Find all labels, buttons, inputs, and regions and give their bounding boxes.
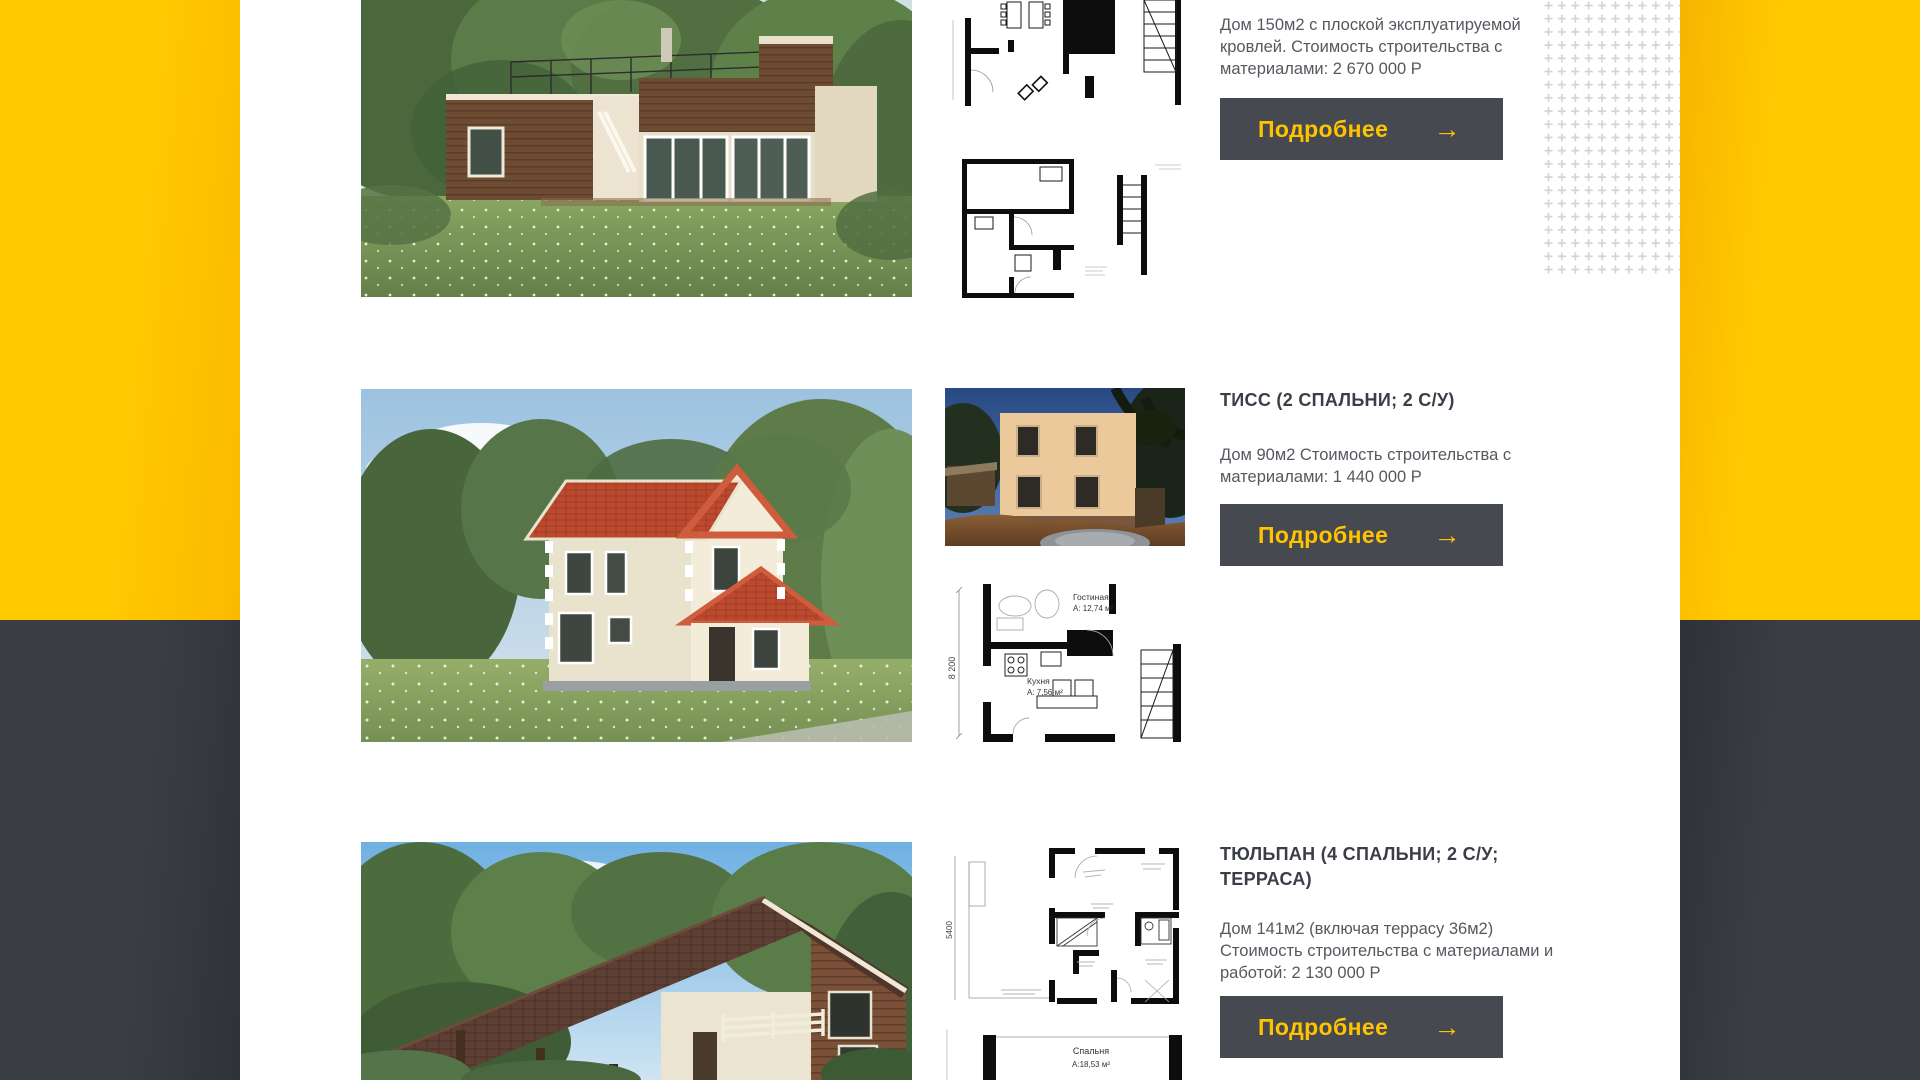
plan-room-label: Гостиная xyxy=(1073,592,1109,602)
plan-room-label: Кухня xyxy=(1027,676,1050,686)
plus-pattern-decoration xyxy=(1543,0,1680,278)
details-button[interactable]: Подробнее → xyxy=(1220,504,1503,566)
project-description: Дом 150м2 с плоской эксплуатируемой кров… xyxy=(1220,14,1532,80)
left-strip-yellow xyxy=(0,0,240,620)
project-photo-flat-roof-house xyxy=(361,0,912,297)
arrow-right-icon: → xyxy=(1434,520,1461,551)
project-title: ТИСС (2 СПАЛЬНИ; 2 С/У) xyxy=(1220,388,1560,413)
project-photo-tiss-house xyxy=(361,389,912,742)
right-accent-strip xyxy=(1680,0,1920,1080)
floor-plan-tulpan: 5400 xyxy=(945,842,1185,1011)
details-button[interactable]: Подробнее → xyxy=(1220,996,1503,1058)
details-button[interactable]: Подробнее → xyxy=(1220,98,1503,160)
floor-plan-tiss: 8 200 xyxy=(945,584,1185,742)
left-accent-strip xyxy=(0,0,240,1080)
project-title: ТЮЛЬПАН (4 СПАЛЬНИ; 2 С/У; ТЕРРАСА) xyxy=(1220,842,1550,892)
right-strip-dark xyxy=(1680,620,1920,1080)
floor-plan-1a xyxy=(945,0,1185,135)
plan-room-label: Спальня xyxy=(1073,1046,1109,1056)
right-strip-yellow xyxy=(1680,0,1920,620)
plan-room-area: А: 7,56 м² xyxy=(1027,688,1063,697)
details-button-label: Подробнее xyxy=(1258,1014,1388,1041)
floor-plan-1b xyxy=(945,157,1185,300)
left-strip-dark xyxy=(0,620,240,1080)
project-description: Дом 141м2 (включая террасу 36м2) Стоимос… xyxy=(1220,918,1572,984)
arrow-right-icon: → xyxy=(1434,1012,1461,1043)
project-photo-tulpan-house xyxy=(361,842,912,1080)
project-description: Дом 90м2 Стоимость строительства с матер… xyxy=(1220,444,1532,488)
plan-dimension-label: 5400 xyxy=(945,921,954,939)
details-button-label: Подробнее xyxy=(1258,522,1388,549)
construction-photo-tiss xyxy=(945,388,1185,546)
projects-catalog-page: { "theme": { "accent_yellow": "#ffc400",… xyxy=(0,0,1920,1080)
details-button-label: Подробнее xyxy=(1258,116,1388,143)
floor-plan-tulpan-2-partial: Спальня А:18,53 м² xyxy=(945,1029,1185,1080)
arrow-right-icon: → xyxy=(1434,114,1461,145)
plan-dimension-label: 8 200 xyxy=(947,657,957,680)
plan-room-area: А: 12,74 м² xyxy=(1073,604,1114,613)
plan-room-area: А:18,53 м² xyxy=(1072,1060,1110,1069)
